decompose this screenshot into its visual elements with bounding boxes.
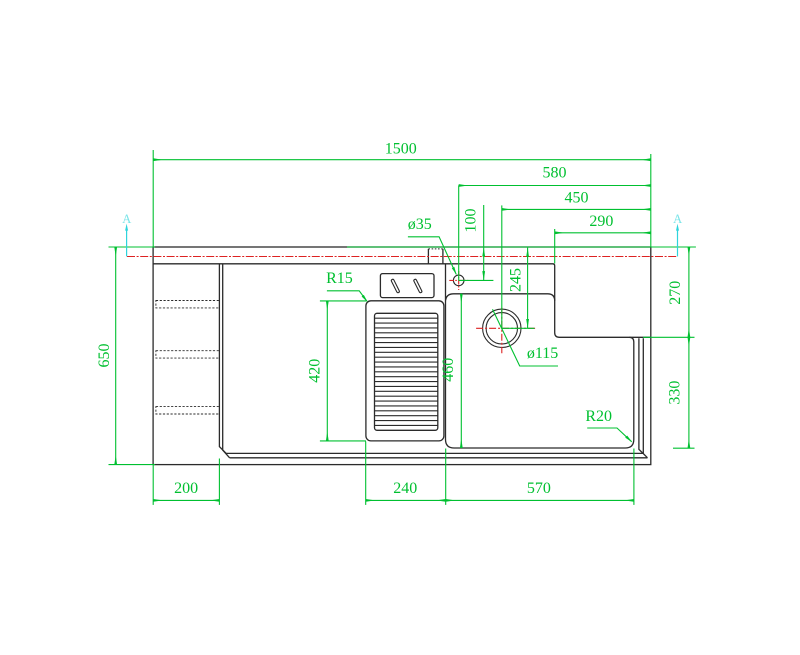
svg-text:290: 290: [589, 213, 613, 230]
svg-text:A: A: [122, 212, 131, 226]
svg-text:100: 100: [463, 209, 480, 233]
svg-text:460: 460: [440, 358, 457, 382]
svg-text:ø35: ø35: [408, 216, 432, 233]
svg-text:A: A: [673, 212, 682, 226]
svg-text:650: 650: [96, 344, 113, 368]
svg-text:570: 570: [527, 480, 551, 497]
svg-text:330: 330: [667, 381, 684, 405]
svg-text:R15: R15: [326, 270, 353, 287]
svg-text:450: 450: [565, 189, 589, 206]
svg-text:ø115: ø115: [527, 345, 558, 362]
svg-text:240: 240: [393, 480, 417, 497]
svg-text:245: 245: [507, 268, 524, 292]
svg-text:1500: 1500: [385, 140, 417, 157]
svg-text:270: 270: [667, 281, 684, 305]
svg-text:580: 580: [543, 164, 567, 181]
svg-text:200: 200: [174, 480, 198, 497]
svg-text:R20: R20: [585, 408, 612, 425]
svg-text:420: 420: [306, 359, 323, 383]
